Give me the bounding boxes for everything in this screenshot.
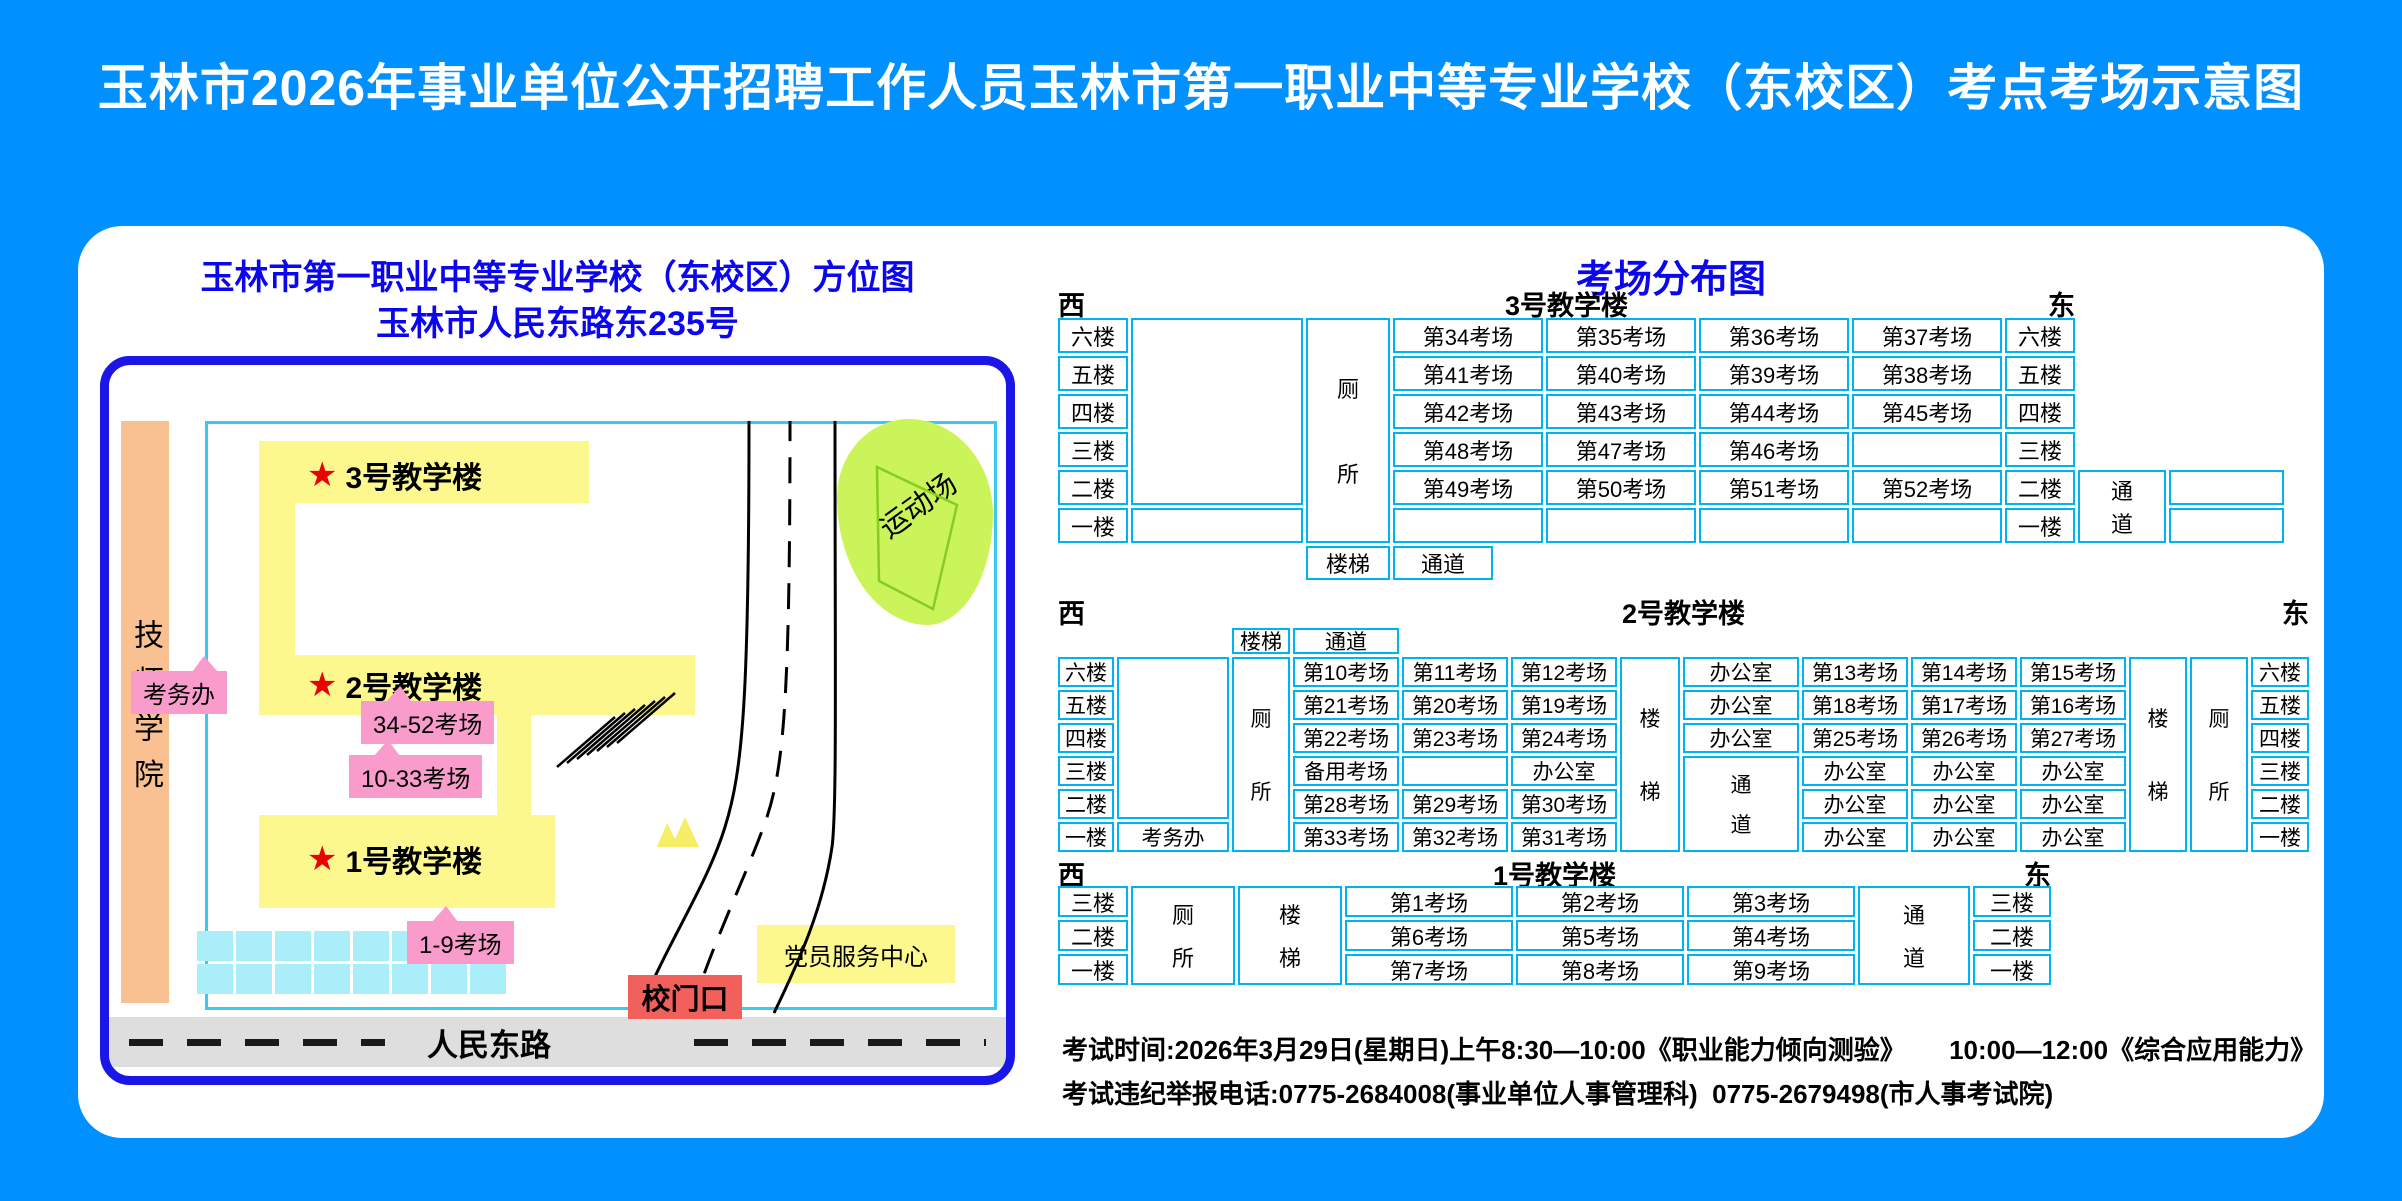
room-cell: 第16考场 <box>2020 690 2126 720</box>
room-cell: 第29考场 <box>1402 789 1508 819</box>
room-cell <box>1402 756 1508 786</box>
room-cell: 第46考场 <box>1699 432 1849 467</box>
room-cell: 第20考场 <box>1402 690 1508 720</box>
passage-cell: 通道 <box>1393 546 1493 580</box>
room-cell: 第7考场 <box>1345 954 1513 985</box>
floor-cell: 六楼 <box>1058 657 1114 687</box>
stairs-cell: 楼 梯 <box>2129 657 2187 852</box>
floor-cell: 五楼 <box>2005 356 2075 391</box>
room-cell: 第36考场 <box>1699 318 1849 353</box>
room-cell: 第10考场 <box>1293 657 1399 687</box>
room-cell: 第26考场 <box>1911 723 2017 753</box>
room-cell: 第2考场 <box>1516 886 1684 917</box>
stairs-char: 楼 <box>1640 703 1661 733</box>
landscape-mark <box>657 817 699 847</box>
office-cell: 办公室 <box>1911 756 2017 786</box>
floor-cell: 三楼 <box>1973 886 2051 917</box>
report-phone-note: 考试违纪举报电话:0775-2684008(事业单位人事管理科) 0775-26… <box>1062 1074 2053 1111</box>
room-cell <box>1699 508 1849 543</box>
passage-char: 通 <box>1903 898 1925 930</box>
passage-cell: 通 道 <box>1683 756 1799 852</box>
passage-cell: 通 道 <box>2078 470 2166 543</box>
room-cell: 第30考场 <box>1511 789 1617 819</box>
room-cell: 第48考场 <box>1393 432 1543 467</box>
room-cell: 第34考场 <box>1393 318 1543 353</box>
room-cell: 第22考场 <box>1293 723 1399 753</box>
building-2-rooms-tag: 10-33考场 <box>349 755 482 798</box>
stairs-char: 梯 <box>1640 776 1661 806</box>
floor-cell: 四楼 <box>2005 394 2075 429</box>
room-cell: 第38考场 <box>1852 356 2002 391</box>
room-cell: 第42考场 <box>1393 394 1543 429</box>
passage-cell: 通 道 <box>1858 886 1970 985</box>
building-1-rooms-tag: 1-9考场 <box>407 921 514 964</box>
floor-cell: 一楼 <box>1973 954 2051 985</box>
room-cell: 第45考场 <box>1852 394 2002 429</box>
room-cell: 第50考场 <box>1546 470 1696 505</box>
passage-char: 通 <box>2111 474 2133 506</box>
road-center-dashed <box>691 421 790 1013</box>
exam-time-note: 考试时间:2026年3月29日(星期日)上午8:30—10:00《职业能力倾向测… <box>1062 1030 2316 1067</box>
stairs-char: 楼 <box>1279 898 1301 930</box>
page-title: 玉林市2026年事业单位公开招聘工作人员玉林市第一职业中等专业学校（东校区）考点… <box>0 48 2402 120</box>
stairs-char: 梯 <box>1279 941 1301 973</box>
room-cell: 第51考场 <box>1699 470 1849 505</box>
floor-cell: 三楼 <box>1058 756 1114 786</box>
stairs-cell: 楼梯 <box>1306 546 1390 580</box>
floor-cell: 一楼 <box>1058 954 1128 985</box>
slope-hatch-lines <box>557 693 675 767</box>
room-cell: 第11考场 <box>1402 657 1508 687</box>
room-cell: 第41考场 <box>1393 356 1543 391</box>
office-cell: 办公室 <box>1683 723 1799 753</box>
office-cell: 办公室 <box>1683 690 1799 720</box>
floor-cell: 二楼 <box>2005 470 2075 505</box>
stairs-cell: 楼 梯 <box>1620 657 1680 852</box>
floor-cell: 五楼 <box>2251 690 2309 720</box>
floor-cell: 二楼 <box>1058 789 1114 819</box>
floor-cell: 六楼 <box>2005 318 2075 353</box>
empty-cell <box>1117 657 1229 819</box>
floor-cell: 四楼 <box>1058 394 1128 429</box>
floor-cell: 六楼 <box>1058 318 1128 353</box>
building-2-header: 西 2号教学楼 东 <box>1058 592 2309 631</box>
room-cell: 第44考场 <box>1699 394 1849 429</box>
toilet-char: 厕 <box>1172 898 1194 930</box>
toilet-char: 所 <box>1251 776 1272 806</box>
room-cell: 第25考场 <box>1802 723 1908 753</box>
room-cell: 第23考场 <box>1402 723 1508 753</box>
room-cell: 备用考场 <box>1293 756 1399 786</box>
passage-char: 道 <box>1731 809 1752 839</box>
floor-cell: 二楼 <box>1058 470 1128 505</box>
room-cell <box>1393 508 1543 543</box>
room-cell: 第1考场 <box>1345 886 1513 917</box>
room-cell: 第24考场 <box>1511 723 1617 753</box>
toilet-cell: 厕 所 <box>1131 886 1235 985</box>
passage-char: 通 <box>1731 769 1752 799</box>
room-cell: 第35考场 <box>1546 318 1696 353</box>
building-2-table-name: 2号教学楼 <box>1622 592 1745 631</box>
floor-cell: 三楼 <box>2251 756 2309 786</box>
floor-cell: 五楼 <box>1058 690 1114 720</box>
west-label: 西 <box>1058 592 1085 631</box>
office-cell: 办公室 <box>1683 657 1799 687</box>
stairs-char: 楼 <box>2148 703 2169 733</box>
toilet-char: 所 <box>1172 941 1194 973</box>
floor-cell: 六楼 <box>2251 657 2309 687</box>
floor-cell: 一楼 <box>1058 822 1114 852</box>
room-cell: 办公室 <box>1511 756 1617 786</box>
room-cell: 第33考场 <box>1293 822 1399 852</box>
floor-cell: 一楼 <box>2251 822 2309 852</box>
office-cell: 办公室 <box>1802 756 1908 786</box>
room-cell: 第6考场 <box>1345 920 1513 951</box>
office-cell: 办公室 <box>2020 789 2126 819</box>
room-cell: 第17考场 <box>1911 690 2017 720</box>
school-gate: 校门口 <box>628 975 742 1019</box>
floor-cell: 一楼 <box>2005 508 2075 543</box>
room-cell: 第47考场 <box>1546 432 1696 467</box>
exam-office-tag: 考务办 <box>131 671 227 714</box>
poster: 玉林市2026年事业单位公开招聘工作人员玉林市第一职业中等专业学校（东校区）考点… <box>0 0 2402 1201</box>
toilet-char: 所 <box>1337 457 1359 489</box>
floor-cell: 三楼 <box>2005 432 2075 467</box>
room-cell: 第43考场 <box>1546 394 1696 429</box>
room-cell: 第28考场 <box>1293 789 1399 819</box>
floor-cell: 五楼 <box>1058 356 1128 391</box>
campus-map: 技师学院 运动场 ★ 3号教学楼 ★ 2号教学楼 <box>100 356 1015 1085</box>
building-2-table: 楼梯 通道 六楼 五楼 四楼 三楼 二楼 一楼 考务办 厕 所 第10考场 第1… <box>1058 628 2309 852</box>
room-cell: 第52考场 <box>1852 470 2002 505</box>
floor-cell: 四楼 <box>1058 723 1114 753</box>
room-cell: 第49考场 <box>1393 470 1543 505</box>
room-cell <box>1546 508 1696 543</box>
floor-cell: 三楼 <box>1058 432 1128 467</box>
room-cell <box>1852 432 2002 467</box>
room-cell: 第15考场 <box>2020 657 2126 687</box>
room-cell: 第40考场 <box>1546 356 1696 391</box>
room-cell: 第32考场 <box>1402 822 1508 852</box>
room-cell: 第5考场 <box>1516 920 1684 951</box>
room-cell: 第31考场 <box>1511 822 1617 852</box>
room-cell: 第18考场 <box>1802 690 1908 720</box>
roads-layer <box>109 365 1006 1076</box>
floor-cell: 二楼 <box>2251 789 2309 819</box>
floor-cell: 一楼 <box>1058 508 1128 543</box>
east-label: 东 <box>2282 592 2309 631</box>
toilet-cell: 厕 所 <box>1306 318 1390 543</box>
room-cell: 第27考场 <box>2020 723 2126 753</box>
room-cell: 第39考场 <box>1699 356 1849 391</box>
sports-field-track <box>877 467 957 609</box>
room-cell: 第21考场 <box>1293 690 1399 720</box>
floor-cell: 二楼 <box>1973 920 2051 951</box>
room-cell: 第3考场 <box>1687 886 1855 917</box>
office-cell: 办公室 <box>2020 822 2126 852</box>
stairs-cell: 楼 梯 <box>1238 886 1342 985</box>
passage-cell: 通道 <box>1293 628 1399 654</box>
building-3-rooms-tag: 34-52考场 <box>361 701 494 744</box>
road-left-edge <box>642 421 749 1006</box>
map-title-line1: 玉林市第一职业中等专业学校（东校区）方位图 <box>100 250 1015 299</box>
floor-cell: 三楼 <box>1058 886 1128 917</box>
empty-cell <box>1131 508 1303 543</box>
empty-cell <box>2169 470 2284 505</box>
floor-cell: 四楼 <box>2251 723 2309 753</box>
office-cell: 办公室 <box>1911 789 2017 819</box>
room-cell: 第19考场 <box>1511 690 1617 720</box>
office-cell: 办公室 <box>1802 789 1908 819</box>
empty-cell <box>2169 508 2284 543</box>
room-cell: 第14考场 <box>1911 657 2017 687</box>
room-cell: 第37考场 <box>1852 318 2002 353</box>
room-cell: 第12考场 <box>1511 657 1617 687</box>
building-1-table: 三楼 二楼 一楼 厕 所 楼 梯 第1考场 第2考场 第3考场 第6考场 第5考… <box>1058 886 2051 985</box>
floor-cell: 二楼 <box>1058 920 1128 951</box>
room-cell: 第13考场 <box>1802 657 1908 687</box>
toilet-char: 厕 <box>1337 372 1359 404</box>
toilet-char: 所 <box>2209 776 2230 806</box>
office-cell: 办公室 <box>2020 756 2126 786</box>
map-title-line2: 玉林市人民东路东235号 <box>100 296 1015 345</box>
room-cell: 第4考场 <box>1687 920 1855 951</box>
passage-char: 道 <box>2111 507 2133 539</box>
room-cell: 第9考场 <box>1687 954 1855 985</box>
stairs-char: 梯 <box>2148 776 2169 806</box>
toilet-cell: 厕 所 <box>2190 657 2248 852</box>
toilet-cell: 厕 所 <box>1232 657 1290 852</box>
stairs-cell: 楼梯 <box>1232 628 1290 654</box>
room-cell <box>1852 508 2002 543</box>
passage-char: 道 <box>1903 941 1925 973</box>
toilet-char: 厕 <box>1251 703 1272 733</box>
exam-office-cell: 考务办 <box>1117 822 1229 852</box>
building-3-table: 六楼 五楼 四楼 三楼 二楼 一楼 厕 所 第34考场 第35考场 第36考场 … <box>1058 318 2284 580</box>
office-cell: 办公室 <box>1802 822 1908 852</box>
toilet-char: 厕 <box>2209 703 2230 733</box>
room-cell: 第8考场 <box>1516 954 1684 985</box>
office-cell: 办公室 <box>1911 822 2017 852</box>
empty-cell <box>1131 318 1303 505</box>
